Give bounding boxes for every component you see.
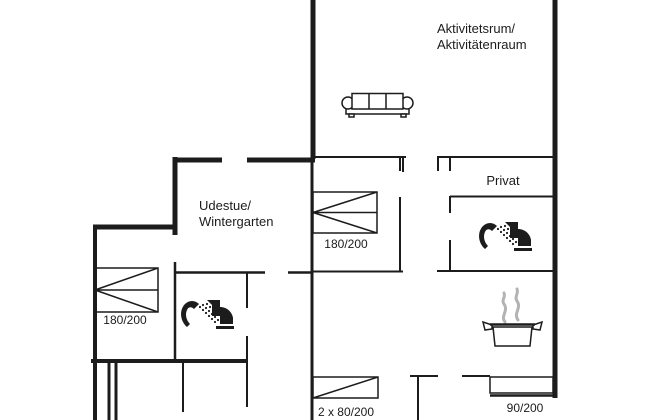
- winter-garden-label-line1: Udestue/: [199, 198, 251, 213]
- sofa-icon: [342, 94, 413, 118]
- door-jambs: [400, 158, 450, 172]
- bed-alcove-90-200: [490, 377, 553, 396]
- bathroom-right-fixtures: [479, 222, 532, 251]
- bed-bottom-size-label: 2 x 80/200: [318, 405, 374, 419]
- bed-alcove-size-label: 90/200: [507, 401, 544, 415]
- bed-left-size-label: 180/200: [103, 313, 147, 327]
- winter-garden-label-line2: Wintergarten: [199, 214, 273, 229]
- steam-icon: [503, 289, 519, 322]
- bed-middle-size-label: 180/200: [324, 237, 368, 251]
- bed-left-180-200: [95, 268, 158, 312]
- bathroom-left-fixtures: [181, 300, 234, 329]
- terrace-lines: [109, 362, 247, 420]
- activity-room-label-line2: Aktivitätenraum: [437, 37, 527, 52]
- bed-bottom-2x80-200: [313, 377, 378, 398]
- private-room-label: Privat: [486, 173, 520, 188]
- activity-room-label-line1: Aktivitetsrum/: [437, 21, 515, 36]
- bed-middle-180-200: [313, 192, 377, 233]
- cooking-pot-icon: [483, 289, 542, 346]
- floor-plan: Aktivitetsrum/ Aktivitätenraum Udestue/ …: [0, 0, 650, 420]
